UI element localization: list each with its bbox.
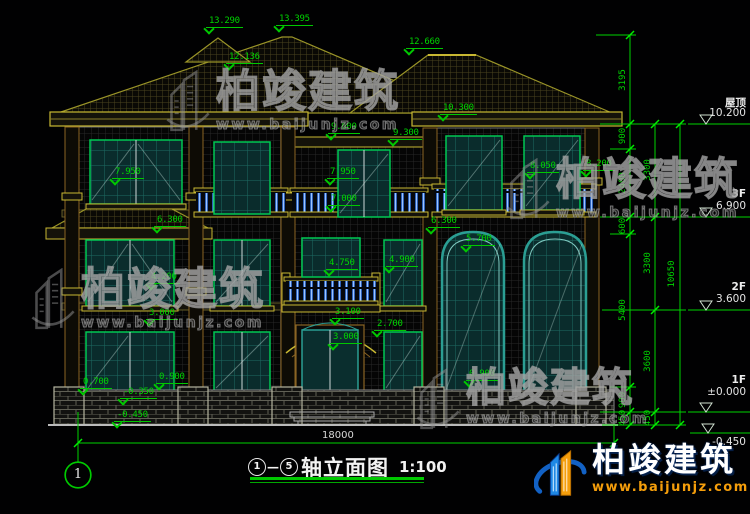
dimension-label: 6.300 — [428, 216, 460, 228]
title-underline-thin — [250, 482, 424, 483]
dimension-label: 3.100 — [332, 307, 364, 319]
chain-dimension: 900 — [618, 128, 628, 144]
dimension-label: 13.395 — [276, 14, 313, 26]
dimension-label: 0.700 — [80, 377, 112, 389]
dimension-label: 9.600 — [328, 122, 360, 134]
chain-dimension: 600 — [618, 218, 628, 234]
chain-dimension: 3600 — [643, 350, 653, 372]
level-name: 1F — [640, 374, 746, 386]
dimension-label: 12.660 — [406, 37, 443, 49]
axis-start-circle: 1 — [248, 458, 266, 476]
level-elevation: 10.200 — [640, 107, 746, 119]
dimension-label: 10.300 — [440, 103, 477, 115]
level-name: 2F — [640, 281, 746, 293]
dimension-label: 4.750 — [326, 258, 358, 270]
dimension-label: -0.350 — [120, 387, 157, 399]
chain-dimension: 2400 — [618, 172, 628, 194]
elevation-linework — [0, 0, 750, 514]
dimension-label: 5.700 — [463, 234, 495, 246]
level-elevation: 3.600 — [640, 293, 746, 305]
dimension-label: 3.000 — [146, 308, 178, 320]
chain-dimension: 450 — [643, 410, 653, 426]
drawing-scale: 1:100 — [399, 458, 447, 476]
dimension-label: 2.700 — [374, 319, 406, 331]
dimension-label: 6.300 — [154, 215, 186, 227]
dimension-label: 13.290 — [206, 16, 243, 28]
company-logo: 柏竣建筑 www.baijunjz.com — [534, 443, 749, 507]
chain-dimension: 5400 — [618, 299, 628, 321]
dimension-label: 7.950 — [112, 167, 144, 179]
chain-dimension: 3300 — [643, 252, 653, 274]
dimension-label: 4.200 — [148, 272, 180, 284]
dimension-label: 0.900 — [466, 369, 498, 381]
chain-dimension: 3300 — [643, 159, 653, 181]
company-url: www.baijunjz.com — [592, 480, 749, 495]
dimension-label: 4.900 — [386, 255, 418, 267]
dimension-label: 7.000 — [328, 194, 360, 206]
title-underline-thick — [250, 477, 424, 480]
cad-elevation-sheet: 13.29013.39512.13612.66010.3009.6009.300… — [0, 0, 750, 514]
chain-dimension: 900 — [618, 392, 628, 408]
chain-dimension: 3195 — [618, 69, 628, 91]
dimension-label: 8.050 — [527, 161, 559, 173]
dimension-label: 7.950 — [327, 167, 359, 179]
dimension-label: 12.136 — [226, 52, 263, 64]
company-logo-icon — [534, 443, 588, 507]
level-name: 3F — [640, 188, 746, 200]
dimension-label: 8.200 — [583, 159, 615, 171]
axis-range-dash: — — [267, 460, 279, 474]
axis-bubble-1: 1 — [65, 462, 91, 488]
axis-end-circle: 5 — [280, 458, 298, 476]
dimension-label: 9.300 — [390, 128, 422, 140]
chain-dimension: 450 — [618, 410, 628, 426]
overall-width-dimension: 18000 — [322, 430, 354, 441]
dimension-label: -0.450 — [114, 410, 151, 422]
level-elevation: ±0.000 — [640, 386, 746, 398]
dimension-label: 3.000 — [330, 332, 362, 344]
level-elevation: 6.900 — [640, 200, 746, 212]
company-name: 柏竣建筑 — [592, 443, 749, 478]
dimension-label: 0.900 — [156, 372, 188, 384]
